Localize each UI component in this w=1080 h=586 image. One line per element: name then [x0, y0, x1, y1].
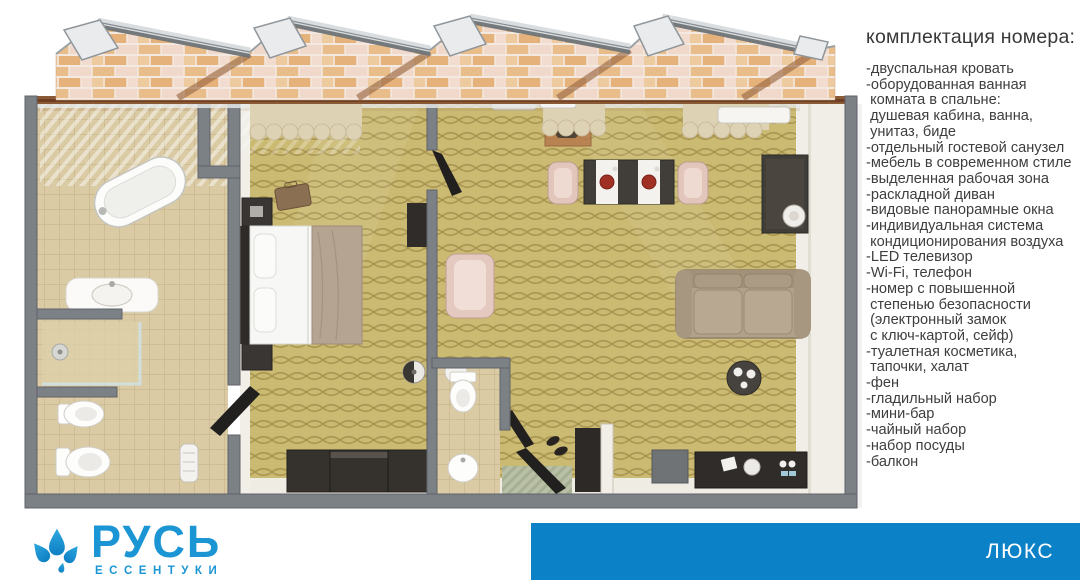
- amenity-item: -Wi-Fi, телефон: [866, 266, 1076, 282]
- entry-wall: [601, 424, 613, 494]
- amenity-item: -раскладной диван: [866, 188, 1076, 204]
- amenity-item: -мебель в современном стиле: [866, 156, 1076, 172]
- ottoman: [652, 450, 688, 483]
- amenities-panel: комплектация номера: -двуспальная кроват…: [866, 26, 1076, 470]
- rus-logo: РУСЬ ЕССЕНТУКИ: [30, 520, 223, 578]
- tv-console: [287, 450, 433, 492]
- writing-desk: [762, 155, 808, 233]
- sofa: [676, 270, 810, 338]
- page: комплектация номера: -двуспальная кроват…: [0, 0, 1080, 586]
- logo-brand: РУСЬ: [91, 521, 223, 562]
- pillow: [254, 288, 276, 332]
- amenity-item: -отдельный гостевой санузел: [866, 141, 1076, 157]
- ac-unit: [718, 107, 790, 123]
- double-bed: [250, 226, 362, 344]
- badge-label: ЛЮКС: [986, 540, 1054, 564]
- sideboard: [695, 452, 807, 488]
- vanity-sink: [66, 278, 158, 312]
- floor-plan-image: [0, 0, 862, 520]
- amenity-item: -выделенная рабочая зона: [866, 172, 1076, 188]
- wardrobe: [575, 428, 601, 492]
- bidet: [58, 401, 104, 427]
- roof-and-brick-wall: [56, 16, 835, 100]
- amenity-item: -балкон: [866, 455, 1076, 471]
- amenity-item: -индивидуальная система кондиционировани…: [866, 219, 1076, 250]
- logo-city: ЕССЕНТУКИ: [95, 565, 223, 577]
- shower-cabin: [42, 322, 140, 384]
- amenity-item: -туалетная косметика, тапочки, халат: [866, 345, 1076, 376]
- plate: [642, 175, 656, 189]
- dining-table: [584, 160, 674, 204]
- amenity-item: -мини-бар: [866, 407, 1076, 423]
- headboard: [240, 226, 250, 344]
- armchair: [446, 254, 494, 318]
- room-type-badge: ЛЮКС: [531, 523, 1080, 580]
- coffee-table: [727, 361, 761, 395]
- amenity-item: -LED телевизор: [866, 250, 1076, 266]
- amenity-item: -двуспальная кровать: [866, 62, 1076, 78]
- toilet: [56, 447, 110, 477]
- amenity-item: -чайный набор: [866, 423, 1076, 439]
- radiator: [180, 444, 198, 482]
- amenity-item: -гладильный набор: [866, 392, 1076, 408]
- floor-lamp: [403, 361, 425, 383]
- amenity-item: -фен: [866, 376, 1076, 392]
- amenity-item: -видовые панорамные окна: [866, 203, 1076, 219]
- tv-dresser: [407, 203, 427, 247]
- amenity-item: -номер с повышенной степенью безопасност…: [866, 282, 1076, 345]
- water-drops-icon: [30, 520, 82, 578]
- amenities-list: -двуспальная кровать -оборудованная ванн…: [866, 62, 1076, 470]
- amenity-item: -набор посуды: [866, 439, 1076, 455]
- amenity-item: -оборудованная ванная комната в спальне:…: [866, 78, 1076, 141]
- amenities-title: комплектация номера:: [866, 26, 1076, 49]
- nightstand: [242, 344, 272, 370]
- plate: [600, 175, 614, 189]
- pillow: [254, 234, 276, 278]
